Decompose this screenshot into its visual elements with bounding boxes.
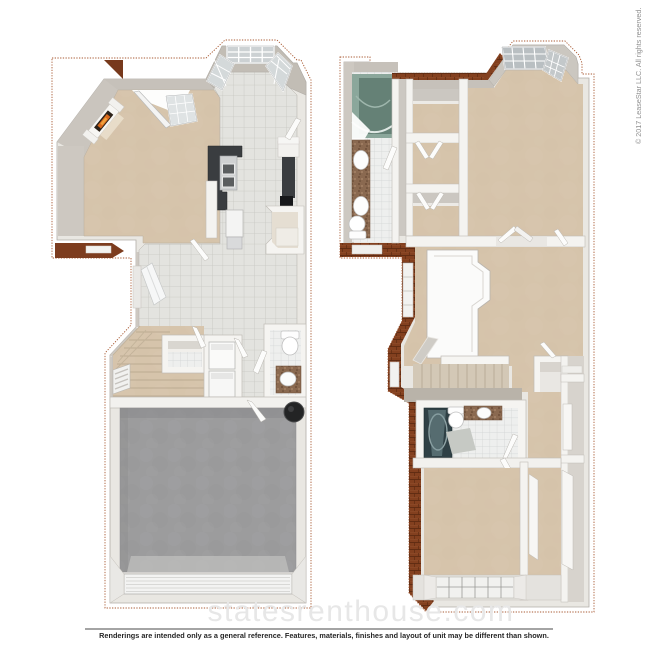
svg-text:Renderings are intended only a: Renderings are intended only as a genera…: [99, 631, 549, 640]
svg-text:© 2017 LeaseStar LLC. All righ: © 2017 LeaseStar LLC. All rights reserve…: [634, 8, 643, 144]
svg-text:statesrenthouse.com: statesrenthouse.com: [208, 595, 515, 628]
